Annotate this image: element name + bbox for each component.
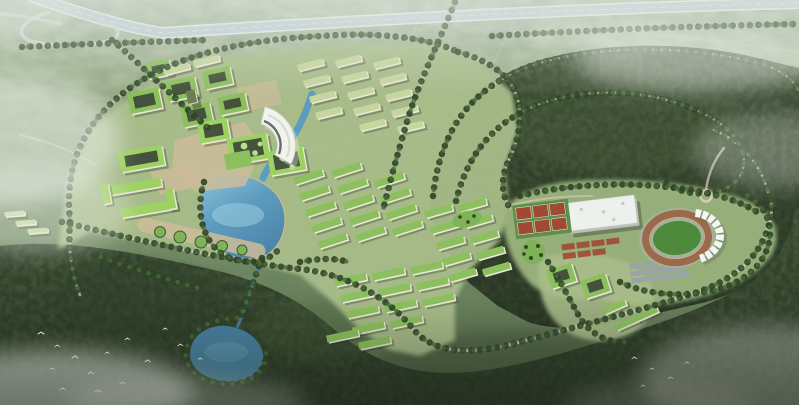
bottom-vignette bbox=[0, 300, 799, 405]
tennis-courts bbox=[512, 199, 572, 240]
masterplan-svg bbox=[0, 0, 799, 405]
masterplan-rendering bbox=[0, 0, 799, 405]
top-haze bbox=[0, 0, 799, 95]
